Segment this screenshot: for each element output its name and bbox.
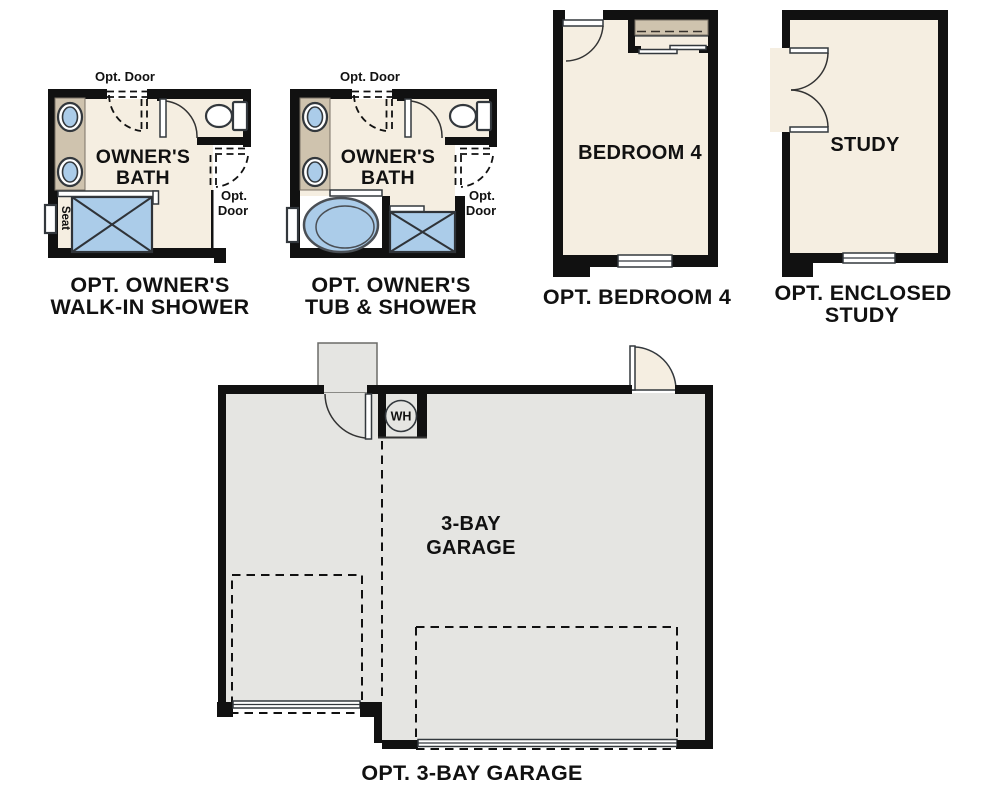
plan-caption: OPT. BEDROOM 4: [543, 285, 731, 309]
door-leaf: [790, 48, 828, 53]
wall: [211, 190, 214, 248]
toilet-icon: [450, 102, 491, 130]
wall: [382, 196, 390, 257]
wall: [895, 253, 938, 263]
plan-study: STUDY OPT. ENCLOSED STUDY: [770, 10, 952, 327]
wall: [782, 132, 790, 253]
water-heater-label: WH: [391, 410, 412, 424]
toilet-icon: [206, 102, 247, 130]
opt-door-right-label: Opt.: [221, 188, 247, 203]
wall: [553, 255, 590, 277]
window: [618, 255, 672, 267]
wall: [782, 10, 790, 48]
wall: [397, 89, 405, 101]
garage-floor: [226, 393, 705, 741]
wall: [672, 255, 718, 267]
plan-caption: WALK-IN SHOWER: [51, 295, 250, 319]
opt-door-right-label: Door: [218, 203, 248, 218]
wall: [782, 10, 948, 20]
shower-glass: [58, 191, 158, 197]
door-leaf: [790, 127, 828, 132]
water-heater-alcove: WH: [378, 394, 427, 438]
wall: [217, 702, 233, 717]
floorplan-options-sheet: Seat Opt. Door Opt. Door OWNER'S BATH OP…: [0, 0, 1000, 800]
room-label: GARAGE: [426, 537, 516, 559]
door-leaf: [630, 346, 635, 390]
garage-door: [418, 740, 677, 747]
tub-window: [287, 208, 298, 242]
room-label: STUDY: [830, 134, 900, 156]
shower-icon: [390, 206, 455, 252]
wall: [603, 10, 718, 20]
wall: [677, 740, 713, 749]
room-label: 3-BAY: [441, 513, 501, 535]
opt-door-right-label: Opt.: [469, 188, 495, 203]
door-leaf: [405, 99, 411, 137]
opt-door-right-dashed: [211, 149, 250, 189]
wall: [374, 715, 382, 743]
closet-shelf: [635, 20, 708, 35]
room-label: BATH: [361, 167, 415, 189]
wall: [445, 137, 497, 145]
tub-deck-edge: [330, 190, 382, 196]
room-label: OWNER'S: [96, 146, 191, 168]
room-label: OWNER'S: [341, 146, 436, 168]
wall: [197, 137, 251, 145]
sink-icon: [58, 158, 82, 186]
bypass-door-panel: [639, 50, 677, 54]
plan-caption: OPT. ENCLOSED: [774, 281, 951, 305]
wall: [708, 10, 718, 267]
floorplan-drawing: Seat Opt. Door Opt. Door OWNER'S BATH OP…: [0, 0, 1000, 800]
wall: [705, 385, 713, 748]
seat-label: Seat: [59, 206, 71, 230]
room-label: BEDROOM 4: [578, 142, 702, 164]
plan-caption: OPT. OWNER'S: [70, 273, 229, 297]
wall: [813, 253, 843, 263]
wall: [382, 740, 418, 749]
opt-door-right-dashed: [456, 149, 495, 189]
opt-door-right-label: Door: [466, 203, 496, 218]
wall: [455, 196, 465, 257]
plan-caption: STUDY: [825, 303, 899, 327]
wall: [782, 253, 813, 277]
wall: [218, 385, 324, 394]
room-label: BATH: [116, 167, 170, 189]
wall: [938, 10, 948, 263]
plan-walkin-shower: Seat Opt. Door Opt. Door OWNER'S BATH OP…: [45, 69, 251, 319]
garage-door: [233, 701, 360, 708]
shower-seat: [45, 205, 56, 233]
shower-glass: [390, 206, 424, 212]
wall: [628, 20, 635, 48]
door-vestibule-floor: [770, 48, 790, 132]
door-leaf: [160, 99, 166, 137]
door-leaf: [366, 394, 372, 439]
window: [843, 253, 895, 263]
wall: [590, 255, 618, 267]
wall: [218, 385, 226, 711]
sink-icon: [58, 103, 82, 131]
plan-caption: OPT. OWNER'S: [311, 273, 470, 297]
opt-door-top-label: Opt. Door: [340, 69, 400, 84]
opt-door-top-label: Opt. Door: [95, 69, 155, 84]
wall: [360, 702, 382, 717]
plan-caption: OPT. 3-BAY GARAGE: [361, 761, 582, 785]
shower-glass: [153, 191, 159, 204]
wall: [553, 10, 563, 255]
wall: [214, 248, 226, 263]
sink-icon: [303, 158, 327, 186]
plan-tub-shower: Opt. Door Opt. Door OWNER'S BATH OPT. OW…: [287, 69, 497, 319]
exterior-door: [630, 346, 676, 390]
wall: [417, 394, 427, 438]
plan-bedroom4: BEDROOM 4 OPT. BEDROOM 4: [543, 10, 731, 309]
wall: [367, 385, 632, 394]
door-leaf: [563, 20, 603, 26]
sink-icon: [303, 103, 327, 131]
door-swing: [633, 347, 676, 390]
wall: [392, 89, 497, 99]
plan-garage: WH 3-BAY GARAGE OPT. 3: [217, 343, 713, 785]
plan-caption: TUB & SHOWER: [305, 295, 477, 319]
